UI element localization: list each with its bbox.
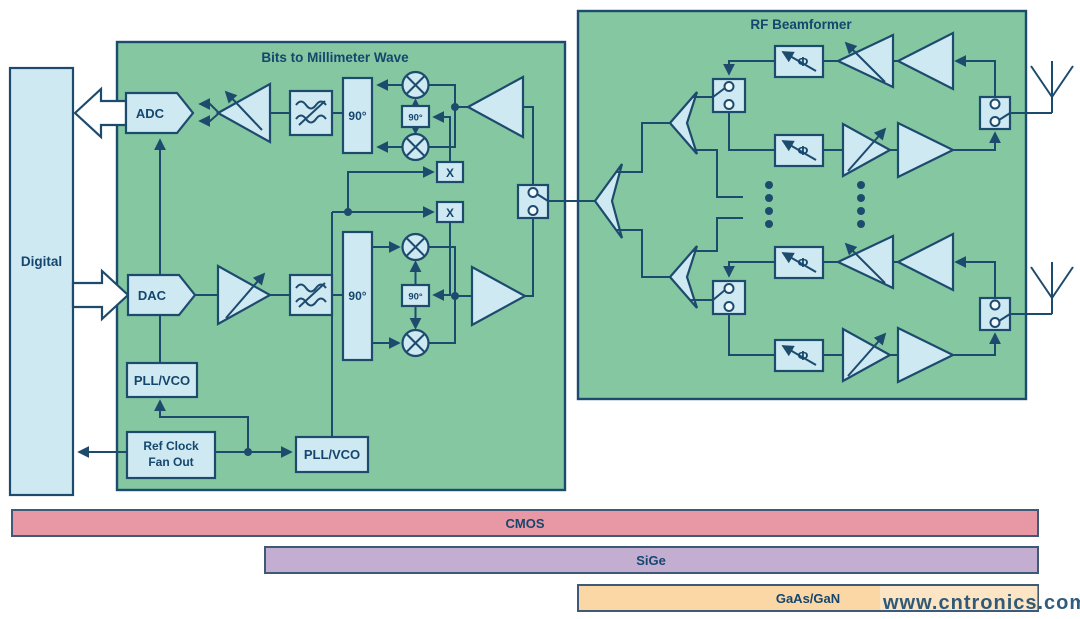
sige-bar-label: SiGe xyxy=(636,553,666,568)
tx-quadrature-90-label: 90° xyxy=(348,289,366,303)
tx-mixer-i xyxy=(403,234,429,260)
svg-text:Φ: Φ xyxy=(798,255,809,270)
rf-system-diagram: Bits to Millimeter Wave RF Beamformer Di… xyxy=(0,0,1080,619)
antenna-switch-top xyxy=(980,97,1010,129)
antenna-bottom xyxy=(1031,262,1073,314)
digital-block xyxy=(10,68,73,495)
channel-switch-top xyxy=(713,79,745,112)
rx-phase-shifter-top: Φ xyxy=(775,46,823,77)
rx-quadrature-90-label: 90° xyxy=(348,109,366,123)
pll-vco-1-label: PLL/VCO xyxy=(134,373,190,388)
antenna-top xyxy=(1031,61,1073,113)
rx-filter xyxy=(290,91,332,135)
tx-mixer-q xyxy=(403,330,429,356)
tx-phase-shifter-bottom: Φ xyxy=(775,340,823,371)
channel-switch-bottom xyxy=(713,281,745,314)
antenna-switch-bottom xyxy=(980,298,1010,330)
tr-switch-bits xyxy=(518,185,548,218)
digital-label: Digital xyxy=(21,254,62,269)
bits-box-title: Bits to Millimeter Wave xyxy=(261,50,409,65)
svg-text:Φ: Φ xyxy=(798,348,809,363)
rx-mixer-i xyxy=(403,72,429,98)
ref-clock-label-line1: Ref Clock xyxy=(143,439,199,453)
gaas-gan-bar-label: GaAs/GaN xyxy=(776,591,840,606)
adc-label: ADC xyxy=(136,106,165,121)
svg-text:Φ: Φ xyxy=(798,54,809,69)
rx-lo-90-label: 90° xyxy=(408,113,423,124)
ref-clock-label-line2: Fan Out xyxy=(148,455,193,469)
freq-multiplier-upper-label: X xyxy=(446,166,454,180)
tx-lo-90-label: 90° xyxy=(408,292,423,303)
svg-text:Φ: Φ xyxy=(798,143,809,158)
rx-phase-shifter-bottom: Φ xyxy=(775,247,823,278)
beamformer-title: RF Beamformer xyxy=(750,17,852,32)
watermark-text: www.cntronics.com xyxy=(882,592,1080,614)
rx-mixer-q xyxy=(403,134,429,160)
freq-multiplier-lower-label: X xyxy=(446,206,454,220)
tx-filter xyxy=(290,275,332,315)
cmos-bar-label: CMOS xyxy=(506,516,545,531)
dac-label: DAC xyxy=(138,288,167,303)
tx-phase-shifter-top: Φ xyxy=(775,135,823,166)
pll-vco-2-label: PLL/VCO xyxy=(304,447,360,462)
